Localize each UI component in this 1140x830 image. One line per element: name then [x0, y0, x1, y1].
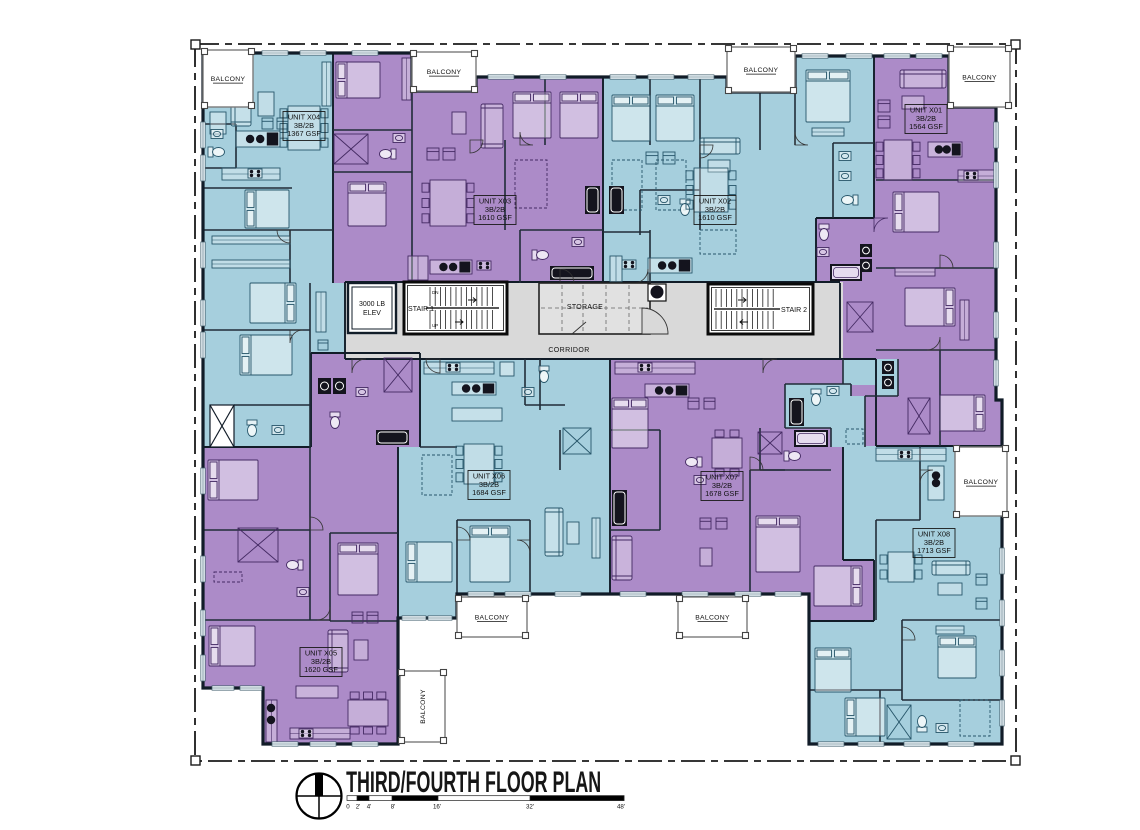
- svg-text:16': 16': [433, 804, 441, 811]
- svg-text:BALCONY: BALCONY: [475, 614, 510, 621]
- svg-text:1610 GSF: 1610 GSF: [698, 213, 732, 222]
- svg-text:1684 GSF: 1684 GSF: [472, 488, 506, 497]
- svg-text:BALCONY: BALCONY: [211, 76, 246, 83]
- svg-text:DN: DN: [432, 290, 439, 295]
- svg-text:3000 LB: 3000 LB: [359, 301, 385, 308]
- svg-text:STORAGE: STORAGE: [567, 304, 603, 311]
- svg-text:CORRIDOR: CORRIDOR: [548, 347, 589, 354]
- svg-text:BALCONY: BALCONY: [744, 67, 779, 74]
- svg-text:BALCONY: BALCONY: [427, 69, 462, 76]
- svg-text:1367 GSF: 1367 GSF: [287, 129, 321, 138]
- svg-text:0: 0: [346, 804, 350, 811]
- svg-text:UP: UP: [432, 323, 438, 328]
- svg-text:1610 GSF: 1610 GSF: [478, 213, 512, 222]
- svg-text:1564 GSF: 1564 GSF: [909, 122, 943, 131]
- svg-text:1620 GSF: 1620 GSF: [304, 665, 338, 674]
- svg-text:8': 8': [391, 804, 396, 811]
- svg-text:32': 32': [526, 804, 534, 811]
- svg-text:BALCONY: BALCONY: [962, 74, 997, 81]
- svg-text:4': 4': [367, 804, 372, 811]
- svg-text:ELEV: ELEV: [363, 310, 381, 317]
- svg-text:THIRD/FOURTH FLOOR PLAN: THIRD/FOURTH FLOOR PLAN: [346, 766, 601, 799]
- svg-text:STAIR 2: STAIR 2: [781, 307, 807, 314]
- svg-text:1678 GSF: 1678 GSF: [705, 489, 739, 498]
- svg-text:48': 48': [617, 804, 625, 811]
- svg-text:STAIR 1: STAIR 1: [408, 306, 434, 313]
- svg-text:BALCONY: BALCONY: [964, 479, 999, 486]
- svg-text:BALCONY: BALCONY: [695, 614, 730, 621]
- svg-text:2': 2': [356, 804, 361, 811]
- svg-text:BALCONY: BALCONY: [420, 689, 427, 724]
- svg-text:1713 GSF: 1713 GSF: [917, 546, 951, 555]
